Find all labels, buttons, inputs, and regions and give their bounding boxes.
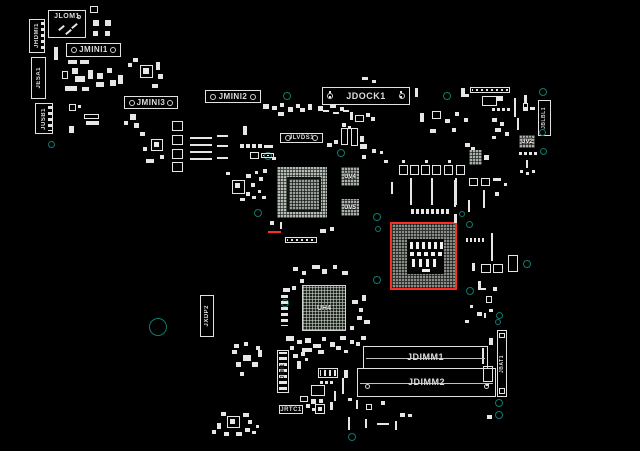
selected-chip-highlight[interactable] [390,222,457,290]
connector-jesa1[interactable]: JESA1 [31,57,46,99]
smd-part [318,407,322,411]
smd-part [356,400,358,409]
smd-part [308,104,312,110]
smd-part [517,118,519,130]
smd-part [143,68,149,74]
chip-small-grid[interactable] [469,150,482,165]
smd-part [505,132,509,136]
smd-part [342,378,344,394]
smd-part [487,415,492,419]
smd-part [230,419,235,424]
smd-part [240,198,245,201]
smd-part [410,165,419,175]
component-label: JUSB1 [41,108,47,130]
component-label: JDIMM1 [407,353,444,362]
smd-part [329,96,331,98]
smd-part [330,381,333,384]
component-label: JRTC1 [280,407,302,413]
smd-part [143,147,147,151]
pad-strip [41,22,45,50]
smd-part [325,381,328,384]
smd-part [330,104,336,108]
smd-part [466,238,468,242]
die-pad [426,259,429,267]
smd-part [300,108,305,112]
smd-part [361,336,366,340]
smd-part [244,342,248,346]
smd-part [320,381,323,384]
smd-part [455,112,459,116]
smd-part [492,118,497,122]
smd-part [343,110,349,112]
pad-array [470,87,510,93]
smd-part [72,68,78,74]
smd-part [481,264,491,273]
smd-part [301,352,305,356]
smd-part [78,105,81,108]
smd-part [333,265,337,269]
smd-part [478,238,480,242]
smd-part [158,74,163,79]
smd-part [344,350,348,353]
chip-uh4[interactable]: UH4 [302,285,346,331]
smd-part [464,118,468,122]
via [348,433,356,441]
smd-part [356,342,360,346]
smd-part [342,271,348,275]
smd-part [482,238,484,242]
die-pad [428,242,431,249]
smd-part [323,110,329,112]
connector-jxdp2[interactable]: JXDP2 [200,295,214,337]
die-pad [433,259,436,267]
smd-part [529,152,532,155]
smd-part [240,144,244,148]
smd-part [246,192,250,196]
pad-strip [281,295,288,326]
smd-part [400,96,402,98]
via [540,148,547,155]
smd-part [236,432,242,436]
smd-part [329,91,331,93]
smd-part [481,178,490,186]
smd-part [495,192,499,196]
die-pad [412,259,415,267]
smd-part [334,140,338,144]
smd-part [69,104,76,111]
smd-part [256,425,259,428]
smd-part [154,142,159,147]
smd-part [350,340,354,344]
via [283,92,291,100]
smd-part [352,300,358,304]
smd-part [431,209,434,214]
smd-part [235,183,240,188]
smd-part [232,350,237,354]
connector-jbat1[interactable]: JBAT1 [497,330,507,397]
smd-part [366,113,370,117]
smd-part [243,355,251,361]
smd-part [482,96,497,106]
smd-part [306,404,310,408]
smd-part [430,129,436,133]
smd-part [330,342,335,347]
smd-part [246,144,250,148]
smd-part [212,430,216,434]
die-pad [424,252,428,256]
smd-part [264,145,273,148]
smd-part [400,91,402,93]
smd-part [426,209,429,214]
smd-part [130,114,136,120]
smd-part [128,63,132,67]
connector-jmini1[interactable]: JMINI1 [66,43,121,57]
smd-part [454,214,457,223]
smd-part [444,165,453,175]
smd-part [446,209,449,214]
smd-part [499,333,505,338]
smd-part [255,171,258,174]
smd-part [489,338,493,345]
smd-part [350,112,353,120]
smd-part [84,114,99,119]
die-pad [416,242,419,249]
smd-part [514,98,516,117]
via [495,411,503,419]
smd-part [160,155,164,159]
smd-part [431,178,433,205]
smd-part [217,145,228,147]
smd-part [312,265,320,269]
smd-part [362,295,366,301]
via [373,276,381,284]
smd-part [359,308,363,312]
smd-part [280,222,282,229]
die-pad [422,269,430,272]
smd-part [441,209,444,214]
smd-part [495,128,501,132]
smd-part [425,160,428,163]
die-pad [410,252,414,256]
smd-part [190,137,212,139]
chip-die-area [407,239,444,274]
smd-part [252,144,256,148]
die-pad [438,252,442,256]
component-label: UV4 [344,174,356,180]
pad-array [285,237,317,243]
smd-part [400,413,405,417]
via [496,312,503,319]
smd-part [351,128,358,146]
smd-part [371,117,375,121]
smd-part [489,309,493,312]
smd-part [336,346,341,350]
smd-part [362,155,366,159]
connector-jdimm2[interactable]: JDIMM2 [357,368,496,397]
smd-part [278,112,284,116]
smd-part [246,174,251,178]
smd-part [507,108,510,111]
smd-part [491,233,493,261]
via [443,92,451,100]
smd-part [263,104,269,109]
smd-part [217,157,228,159]
smd-part [286,336,294,341]
via [495,399,503,407]
smd-part [465,143,470,147]
smd-part [258,190,261,193]
smd-part [416,209,419,214]
cursor-crosshair [268,231,281,233]
smd-part [372,149,376,153]
component-label: JSIM1 [281,364,286,378]
smd-part [110,80,116,86]
connector-jrtc1[interactable]: JRTC1 [279,405,303,414]
smd-part [252,431,256,434]
component-label: JBAT1 [500,355,505,373]
smd-part [436,209,439,214]
component-label: JMINI3 [137,99,166,107]
smd-part [252,196,256,199]
smd-part [526,160,528,168]
smd-part [524,95,527,103]
smd-part [305,358,308,361]
smd-part [411,209,414,214]
smd-part [272,106,277,110]
smd-part [322,337,326,341]
smd-part [54,47,58,60]
smd-part [348,398,352,401]
pad-array [318,368,338,378]
smd-part [348,126,351,129]
component-label: UH4 [317,305,331,312]
smd-part [65,86,77,91]
smd-part [519,152,522,155]
smd-part [474,238,476,242]
smd-part [456,165,465,175]
smd-part [290,346,294,350]
smd-part [468,200,470,212]
chip-uh1[interactable]: UH1 [277,167,327,218]
die-pad [440,242,443,249]
component-label: JMINI2 [219,93,248,101]
via [375,226,381,232]
smd-part [172,135,183,145]
smd-part [399,165,408,175]
component-label: UV5 [344,205,356,211]
smd-part [293,354,298,358]
smd-part [421,165,430,175]
smd-part [190,158,212,160]
component-label: JDOCK1 [346,92,386,101]
smd-part [486,296,492,303]
connector-jmini2[interactable]: JMINI2 [205,90,261,103]
smd-part [236,362,241,367]
smd-part [62,71,68,79]
smd-part [334,391,336,401]
smd-part [478,288,486,290]
smd-part [432,165,441,175]
smd-part [146,159,154,163]
smd-part [355,115,364,122]
smd-part [384,160,388,163]
smd-part [341,128,348,145]
smd-part [105,31,110,36]
via [466,287,474,295]
smd-part [217,135,228,137]
smd-part [380,151,383,154]
smd-part [292,286,296,290]
smd-part [330,227,334,231]
smd-part [362,77,368,80]
smd-part [484,313,486,318]
smd-part [348,417,350,430]
smd-part [322,269,327,274]
smd-part [484,155,489,160]
via [254,209,262,217]
smd-part [493,264,503,273]
smd-part [293,267,298,271]
via [149,318,167,336]
component-label: JMINI1 [79,46,108,54]
smd-part [492,108,495,111]
smd-part [190,151,212,153]
smd-part [452,128,456,132]
smd-part [320,229,326,233]
smd-part [156,62,160,70]
smd-part [395,421,397,430]
smd-part [477,312,482,316]
chip-uv2[interactable]: UV2 [519,135,535,148]
smd-part [313,344,321,348]
smd-part [172,121,183,131]
smd-part [350,326,354,330]
smd-part [250,152,259,159]
via [539,129,546,136]
smd-part [305,338,311,343]
smd-part [377,423,389,425]
component-label: JLOM1 [54,13,80,20]
smd-part [470,305,473,308]
smd-part [96,82,104,87]
chip-die-area [287,177,321,212]
connector-jmini3[interactable]: JMINI3 [124,96,178,109]
chip-uv5[interactable]: UV5 [341,199,359,216]
smd-part [297,340,302,344]
smd-part [524,152,527,155]
smd-part [263,169,267,173]
connector-jdock1[interactable]: JDOCK1 [322,87,410,105]
smd-part [68,60,77,64]
smd-part [297,361,301,369]
smd-part [340,336,346,340]
smd-part [90,6,98,13]
smd-part [226,172,230,175]
board-canvas[interactable]: JHDMI1JLOM1JMINI1JESA1JUSB1JMINI3JMINI2J… [0,0,640,451]
smd-part [105,20,111,26]
smd-part [118,75,123,84]
smd-part [107,68,112,73]
via [337,149,345,157]
smd-part [318,350,324,354]
smd-part [240,372,244,376]
smd-part [270,221,274,225]
smd-part [471,147,475,150]
smd-part [432,111,441,119]
via [523,260,531,268]
smd-part [372,80,376,83]
smd-part [461,94,469,97]
pad-strip [48,106,52,131]
smd-part [497,108,500,111]
via [466,221,473,228]
component-label: JBLBL1 [542,107,547,129]
die-pad [431,252,435,256]
smd-part [82,87,89,91]
smd-part [252,362,258,367]
smd-part [330,402,333,410]
smd-part [520,170,523,173]
pin-marker [365,384,370,389]
smd-part [360,136,364,142]
smd-part [333,112,339,114]
smd-part [93,31,98,36]
smd-part [502,108,505,111]
component-label: UV2 [521,139,533,145]
smd-part [140,132,145,136]
connector-jdimm1[interactable]: JDIMM1 [363,346,488,369]
smd-part [243,126,247,135]
connector-jsim1[interactable]: JSIM1 [277,350,289,393]
connector-jlvds1[interactable]: JLVDS1 [280,133,323,143]
smd-part [470,238,472,242]
smd-part [366,404,372,410]
smd-part [415,88,418,97]
smd-part [221,412,226,416]
smd-part [493,287,497,291]
smd-part [272,157,276,160]
via [495,319,501,325]
smd-part [496,96,503,101]
smd-part [504,183,507,186]
chip-uv4[interactable]: UV4 [341,167,359,186]
component-label: JESA1 [36,67,42,89]
smd-part [499,388,505,394]
smd-part [69,126,74,133]
smd-part [381,401,385,405]
component-label: JDIMM2 [408,378,445,387]
via [539,88,547,96]
component-label: JXDP2 [204,305,210,327]
smd-part [410,178,412,205]
smd-part [500,122,504,126]
smd-part [472,263,475,271]
smd-part [172,149,183,159]
smd-part [248,420,252,424]
smd-part [365,419,367,428]
smd-part [454,180,456,207]
smd-part [88,70,93,79]
smd-part [465,320,469,323]
smd-part [445,119,450,123]
smd-part [391,182,393,194]
smd-part [259,177,263,181]
smd-part [86,121,99,125]
smd-part [364,320,370,324]
smd-part [483,190,485,208]
smd-part [134,123,139,128]
smd-part [258,144,262,148]
